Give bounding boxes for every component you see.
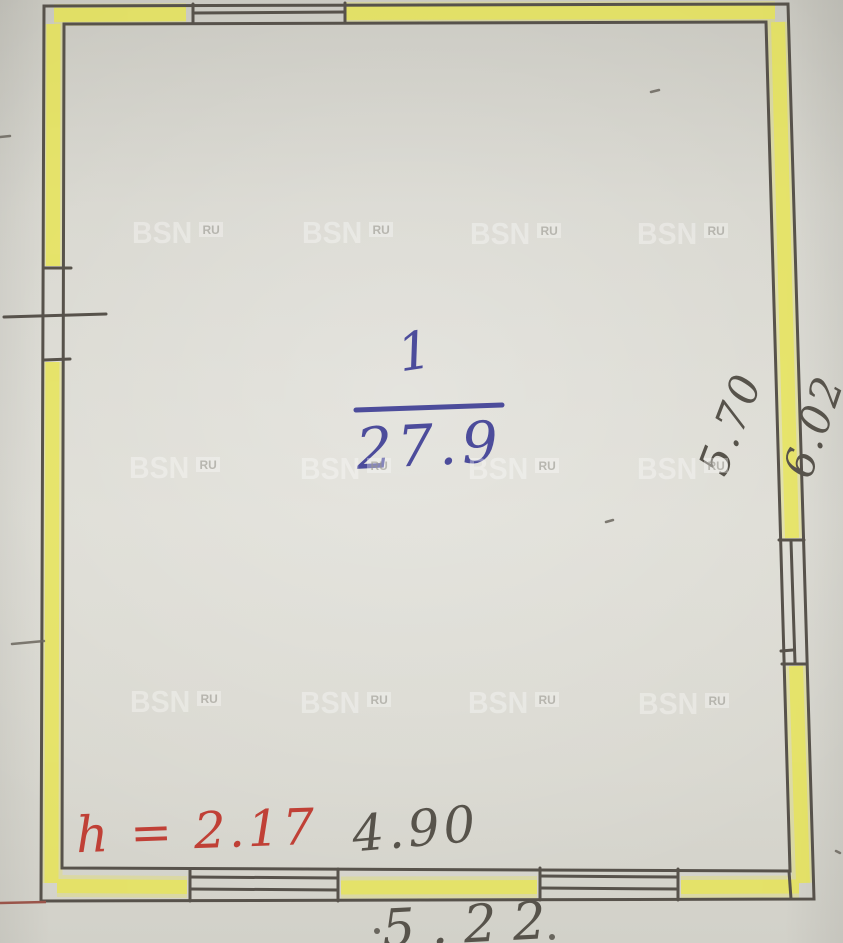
dimension-width-inner: 4.90: [350, 799, 481, 860]
floor-plan-page: 1 27.9 h = 2.17 4.90 5.22 5.70 6.02 BSN …: [0, 0, 843, 943]
room-area: 27.9: [355, 414, 505, 479]
dimension-width-outer: 5.22: [381, 894, 563, 943]
ceiling-height-note: h = 2.17: [75, 802, 318, 860]
dimension-dot: [374, 928, 380, 934]
page-margin-line: [0, 902, 46, 903]
